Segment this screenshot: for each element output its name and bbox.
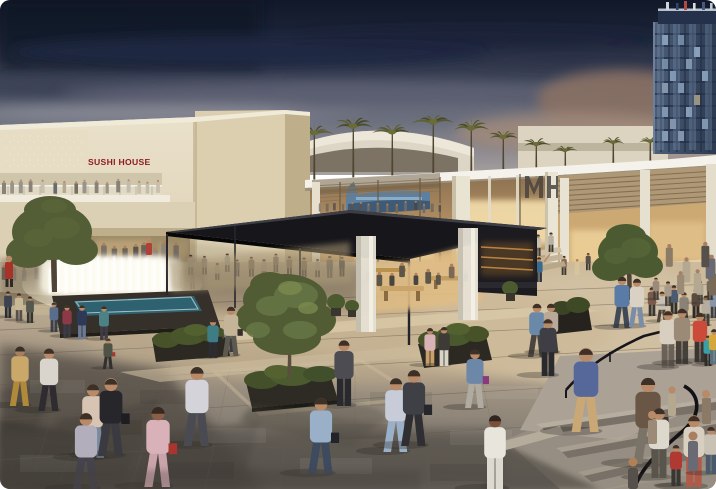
svg-text:SUSHI HOUSE: SUSHI HOUSE <box>88 157 151 167</box>
